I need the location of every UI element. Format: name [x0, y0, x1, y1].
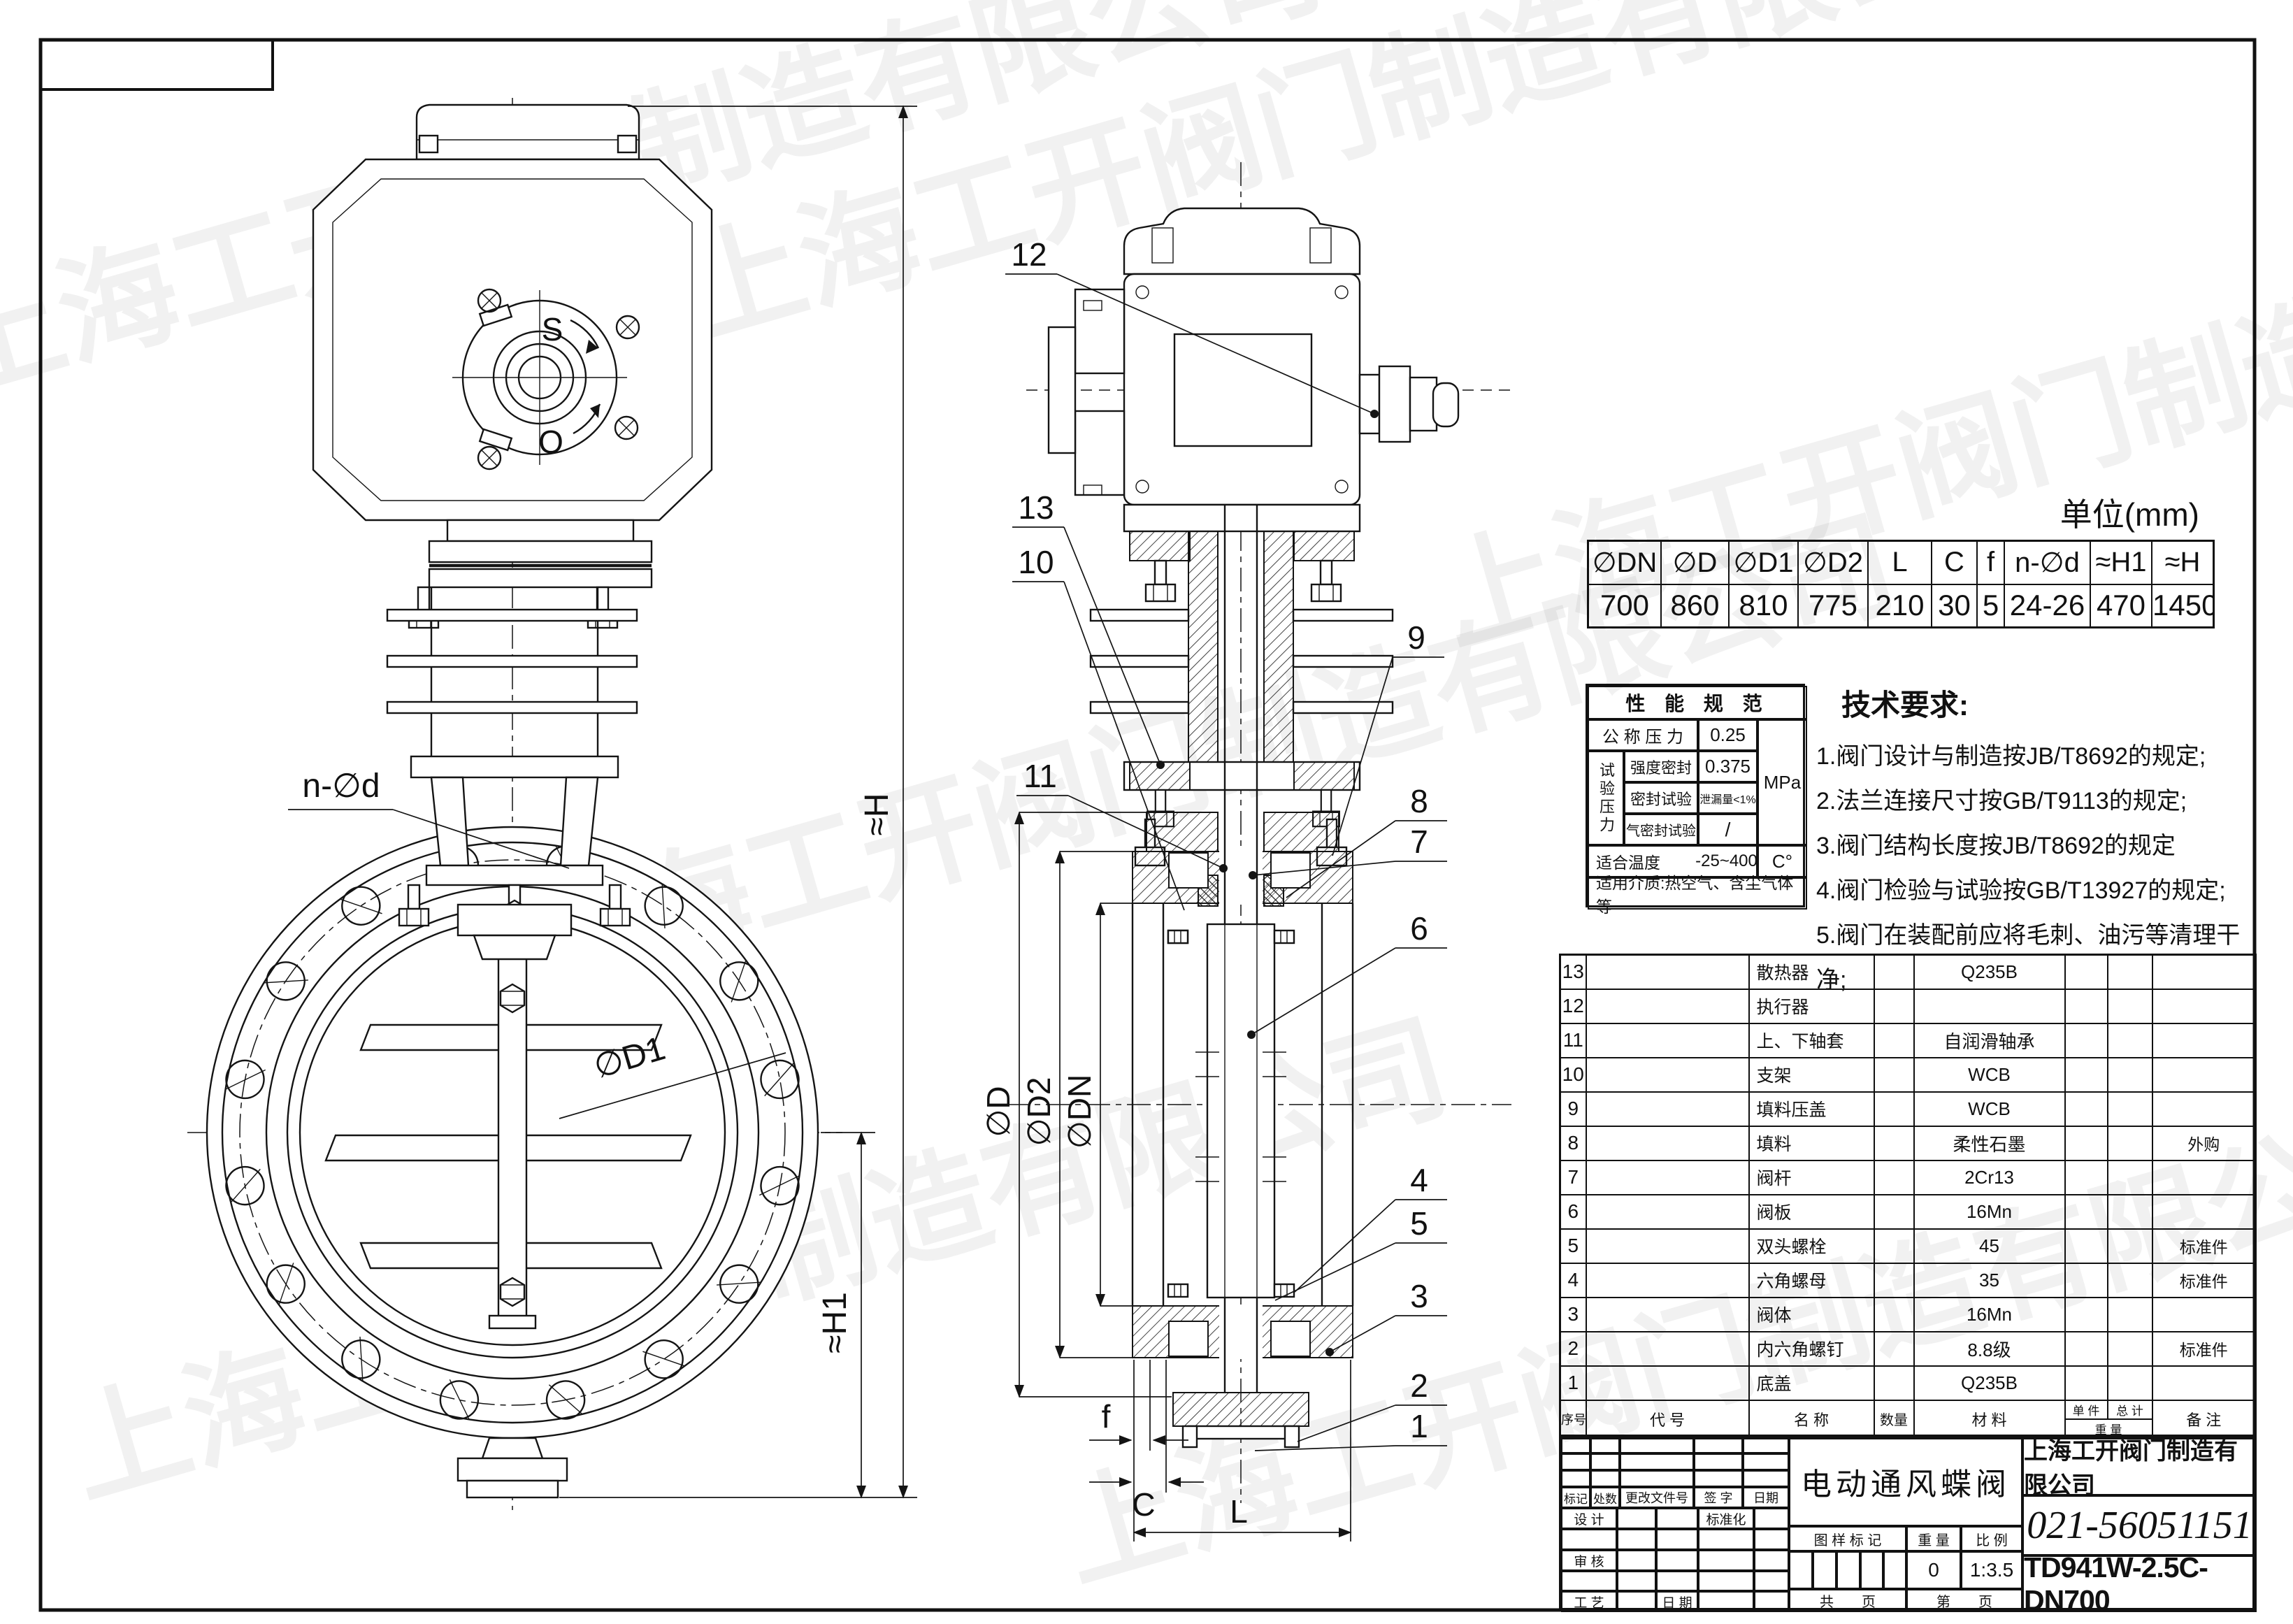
test-pressure-label: 试验压力 — [1588, 751, 1624, 845]
bom-cell-totalwt — [2108, 1263, 2152, 1298]
cable-gland — [1360, 366, 1458, 442]
dim-col-header: f — [1977, 541, 2004, 584]
bom-cell-code — [1586, 1229, 1749, 1263]
bom-cell-seq: 2 — [1560, 1332, 1586, 1366]
dim-D: ∅D — [980, 1086, 1016, 1137]
bom-cell-note: 外购 — [2152, 1126, 2256, 1160]
tb-scale-label: 比 例 — [1961, 1526, 2022, 1551]
bom-cell-qty — [1874, 1263, 1914, 1298]
nominal-pressure-label: 公 称 压 力 — [1588, 719, 1698, 751]
callout-2: 2 — [1410, 1367, 1428, 1404]
tb-sign: 签 字 — [1694, 1487, 1743, 1508]
bom-cell-unitwt — [2065, 1263, 2108, 1298]
bom-cell-totalwt — [2108, 1366, 2152, 1400]
bom-cell-material: 16Mn — [1914, 1195, 2065, 1229]
dim-value: 700 — [1588, 584, 1662, 628]
bom-cell-note — [2152, 1366, 2256, 1400]
bom-cell-unitwt — [2065, 1298, 2108, 1332]
bom-row: 10支架WCB — [1560, 1058, 2256, 1092]
bom-cell-material: Q235B — [1914, 955, 2065, 989]
dim-C: C — [1132, 1486, 1155, 1523]
bom-cell-note — [2152, 1092, 2256, 1126]
bom-cell-code — [1586, 1298, 1749, 1332]
bom-cell-code — [1586, 1160, 1749, 1195]
dim-f: f — [1102, 1398, 1111, 1435]
dial-close-label: O — [538, 424, 563, 460]
bom-row: 12执行器 — [1560, 989, 2256, 1023]
dim-col-header: ∅DN — [1588, 541, 1662, 584]
performance-title: 性 能 规 范 — [1588, 686, 1807, 719]
bottom-foot-front — [458, 1438, 567, 1497]
performance-table: 性 能 规 范 公 称 压 力 0.25 试验压力 强度密封 0.375 密封试… — [1586, 684, 1805, 907]
bom-cell-unitwt — [2065, 989, 2108, 1023]
fin — [387, 610, 637, 621]
bom-cell-name: 底盖 — [1749, 1366, 1874, 1400]
dim-h: ≈H — [858, 793, 896, 835]
bom-cell-note — [2152, 1023, 2256, 1058]
bom-cell-totalwt — [2108, 1160, 2152, 1195]
bom-cell-totalwt — [2108, 1298, 2152, 1332]
dim-L: L — [1230, 1493, 1248, 1530]
bom-cell-qty — [1874, 1023, 1914, 1058]
bom-cell-name: 阀杆 — [1749, 1160, 1874, 1195]
bom-cell-note — [2152, 1298, 2256, 1332]
bom-header-qty: 数量 — [1874, 1400, 1914, 1439]
dim-value: 860 — [1661, 584, 1729, 628]
tb-count: 处数 — [1590, 1487, 1620, 1508]
bom-row: 13散热器Q235B — [1560, 955, 2256, 989]
bom-row: 2内六角螺钉8.8级标准件 — [1560, 1332, 2256, 1366]
bom-cell-unitwt — [2065, 1058, 2108, 1092]
bom-cell-name: 阀板 — [1749, 1195, 1874, 1229]
drawing-sheet: 上海工开阀门制造有限公司 上海工开阀门制造有限公司 上海工开阀门制造有限公司 上… — [0, 0, 2293, 1624]
bom-row: 9填料压盖WCB — [1560, 1092, 2256, 1126]
bom-cell-unitwt — [2065, 1092, 2108, 1126]
bom-cell-totalwt — [2108, 1126, 2152, 1160]
bom-cell-code — [1586, 1023, 1749, 1058]
tb-weight-value: 0 — [1906, 1551, 1961, 1589]
bom-header-total: 总 计 — [2108, 1400, 2152, 1419]
strength-seal-label: 强度密封 — [1624, 751, 1698, 782]
bom-cell-code — [1586, 955, 1749, 989]
fin — [387, 702, 637, 713]
bom-row: 7阀杆2Cr13 — [1560, 1160, 2256, 1195]
bom-cell-qty — [1874, 1126, 1914, 1160]
callout-11: 11 — [1023, 758, 1057, 794]
bom-header-name: 名 称 — [1749, 1400, 1874, 1439]
dial-open-label: S — [542, 311, 563, 347]
bom-cell-unitwt — [2065, 1126, 2108, 1160]
bom-cell-material: WCB — [1914, 1092, 2065, 1126]
bom-cell-code — [1586, 1366, 1749, 1400]
bom-cell-totalwt — [2108, 989, 2152, 1023]
bom-cell-name: 双头螺栓 — [1749, 1229, 1874, 1263]
bom-cell-material: 8.8级 — [1914, 1332, 2065, 1366]
tb-weight-label: 重 量 — [1906, 1526, 1961, 1551]
callout-7: 7 — [1410, 824, 1428, 860]
tb-pages-total: 共 页 — [1789, 1589, 1906, 1612]
bom-cell-totalwt — [2108, 1023, 2152, 1058]
bom-cell-code — [1586, 1263, 1749, 1298]
bom-cell-material: 16Mn — [1914, 1298, 2065, 1332]
bom-cell-material: WCB — [1914, 1058, 2065, 1092]
bom-cell-material: 2Cr13 — [1914, 1160, 2065, 1195]
bom-cell-name: 支架 — [1749, 1058, 1874, 1092]
bom-cell-material: Q235B — [1914, 1366, 2065, 1400]
bom-cell-seq: 3 — [1560, 1298, 1586, 1332]
dim-value: 810 — [1729, 584, 1798, 628]
title-block: 标记 处数 更改文件号 签 字 日期 设 计 标准化 审 核 工 艺 日 期 电… — [1559, 1435, 2255, 1610]
bom-cell-qty — [1874, 1058, 1914, 1092]
bom-cell-code — [1586, 1058, 1749, 1092]
dim-value: 5 — [1977, 584, 2004, 628]
bom-cell-name: 填料压盖 — [1749, 1092, 1874, 1126]
callout-9: 9 — [1407, 619, 1425, 656]
actuator-front: S O — [313, 105, 712, 520]
callout-4: 4 — [1410, 1162, 1428, 1198]
bom-cell-qty — [1874, 1332, 1914, 1366]
bom-cell-material: 45 — [1914, 1229, 2065, 1263]
bom-cell-seq: 8 — [1560, 1126, 1586, 1160]
tb-page-no: 第 页 — [1906, 1589, 2022, 1612]
dim-col-header: n-∅d — [2004, 541, 2090, 584]
seal-test-value: 泄漏量<1% — [1698, 782, 1758, 814]
tb-mark: 标记 — [1561, 1487, 1590, 1508]
model-number: TD941W-2.5C-DN700 — [2022, 1555, 2257, 1612]
callout-12: 12 — [1011, 236, 1047, 273]
tech-req-title: 技术要求: — [1816, 682, 2264, 724]
dim-col-header: ∅D — [1661, 541, 1729, 584]
bom-table: 13散热器Q235B12执行器11上、下轴套自润滑轴承10支架WCB9填料压盖W… — [1559, 954, 2257, 1439]
tech-req-item: 2.法兰连接尺寸按GB/T9113的规定; — [1816, 779, 2264, 824]
bom-cell-name: 内六角螺钉 — [1749, 1332, 1874, 1366]
dim-col-header: L — [1868, 541, 1932, 584]
tb-drawing-mark: 图 样 标 记 — [1789, 1526, 1906, 1551]
bom-cell-qty — [1874, 1298, 1914, 1332]
tb-design: 设 计 — [1561, 1508, 1617, 1529]
bom-cell-seq: 6 — [1560, 1195, 1586, 1229]
bom-cell-unitwt — [2065, 1195, 2108, 1229]
dim-col-header: ∅D1 — [1729, 541, 1798, 584]
bom-cell-name: 六角螺母 — [1749, 1263, 1874, 1298]
bom-cell-seq: 12 — [1560, 989, 1586, 1023]
bom-cell-name: 填料 — [1749, 1126, 1874, 1160]
bom-cell-seq: 4 — [1560, 1263, 1586, 1298]
disc-hub — [1207, 924, 1274, 1298]
dim-value: 775 — [1798, 584, 1868, 628]
bom-header-seq: 序号 — [1560, 1400, 1586, 1439]
bom-row: 5双头螺栓45标准件 — [1560, 1229, 2256, 1263]
callout-10: 10 — [1018, 544, 1054, 580]
medium-note: 适用介质:热空气、含尘气体等 — [1588, 877, 1807, 910]
bom-cell-note: 标准件 — [2152, 1263, 2256, 1298]
callout-8: 8 — [1410, 783, 1428, 819]
bom-row: 3阀体16Mn — [1560, 1298, 2256, 1332]
tb-standardize: 标准化 — [1698, 1508, 1754, 1529]
product-name: 电动通风蝶阀 — [1789, 1437, 2022, 1526]
callout-6: 6 — [1410, 910, 1428, 947]
tech-req-item: 3.阀门结构长度按JB/T8692的规定 — [1816, 824, 2264, 868]
bom-cell-note — [2152, 1195, 2256, 1229]
tech-req-item: 4.阀门检验与试验按GB/T13927的规定; — [1816, 868, 2264, 913]
bom-cell-totalwt — [2108, 1332, 2152, 1366]
dim-n-od: n-∅d — [302, 768, 380, 805]
corner-box — [41, 40, 273, 89]
bom-cell-totalwt — [2108, 1058, 2152, 1092]
tb-check: 审 核 — [1561, 1550, 1617, 1571]
fin — [387, 656, 637, 667]
bom-cell-name: 阀体 — [1749, 1298, 1874, 1332]
bom-cell-totalwt — [2108, 1092, 2152, 1126]
nominal-pressure-value: 0.25 — [1698, 719, 1758, 751]
bom-cell-unitwt — [2065, 1023, 2108, 1058]
tb-craft: 工 艺 — [1561, 1591, 1617, 1612]
bom-cell-code — [1586, 1195, 1749, 1229]
bom-cell-qty — [1874, 1092, 1914, 1126]
bom-cell-code — [1586, 1092, 1749, 1126]
dim-col-header: ≈H — [2152, 541, 2214, 584]
seal-test-label: 密封试验 — [1624, 782, 1698, 814]
bom-cell-name: 执行器 — [1749, 989, 1874, 1023]
air-seal-value: / — [1698, 814, 1758, 845]
actuator-side — [1049, 208, 1458, 505]
bom-cell-seq: 10 — [1560, 1058, 1586, 1092]
company-name: 上海工开阀门制造有限公司 — [2022, 1437, 2257, 1495]
bom-cell-unitwt — [2065, 1366, 2108, 1400]
bom-cell-totalwt — [2108, 1229, 2152, 1263]
bom-cell-name: 散热器 — [1749, 955, 1874, 989]
callout-1: 1 — [1410, 1408, 1428, 1444]
bom-cell-seq: 13 — [1560, 955, 1586, 989]
tb-scale-value: 1:3.5 — [1961, 1551, 2022, 1589]
callout-3: 3 — [1410, 1278, 1428, 1314]
dim-value: 1450 — [2152, 584, 2214, 628]
bom-cell-code — [1586, 989, 1749, 1023]
bom-cell-name: 上、下轴套 — [1749, 1023, 1874, 1058]
valve-body-section — [1133, 505, 1353, 1447]
tech-req-item: 1.阀门设计与制造按JB/T8692的规定; — [1816, 734, 2264, 779]
bottom-cover — [1173, 1393, 1309, 1426]
bom-cell-seq: 11 — [1560, 1023, 1586, 1058]
dimension-table: ∅DN ∅D ∅D1 ∅D2 L C f n-∅d ≈H1 ≈H 700 860… — [1587, 540, 2215, 628]
bom-cell-note — [2152, 955, 2256, 989]
dim-D2: ∅D2 — [1021, 1077, 1057, 1147]
company-phone: 021-56051151 — [2022, 1495, 2257, 1555]
air-seal-label: 气密封试验 — [1624, 814, 1698, 845]
bom-row: 8填料柔性石墨外购 — [1560, 1126, 2256, 1160]
bom-cell-note — [2152, 1058, 2256, 1092]
bom-cell-seq: 5 — [1560, 1229, 1586, 1263]
dim-col-header: C — [1932, 541, 1977, 584]
strength-seal-value: 0.375 — [1698, 751, 1758, 782]
dim-value: 30 — [1932, 584, 1977, 628]
bom-cell-note — [2152, 989, 2256, 1023]
bom-row: 1底盖Q235B — [1560, 1366, 2256, 1400]
dim-col-header: ∅D2 — [1798, 541, 1868, 584]
bom-cell-code — [1586, 1332, 1749, 1366]
bom-cell-qty — [1874, 989, 1914, 1023]
bom-header-code: 代 号 — [1586, 1400, 1749, 1439]
bom-cell-unitwt — [2065, 1229, 2108, 1263]
bom-cell-totalwt — [2108, 955, 2152, 989]
dim-col-header: ≈H1 — [2090, 541, 2152, 584]
bom-row: 4六角螺母35标准件 — [1560, 1263, 2256, 1298]
tb-date2: 日 期 — [1656, 1591, 1698, 1612]
bom-row: 6阀板16Mn — [1560, 1195, 2256, 1229]
bom-cell-code — [1586, 1126, 1749, 1160]
bom-cell-unitwt — [2065, 955, 2108, 989]
bom-cell-material — [1914, 989, 2065, 1023]
bom-cell-note: 标准件 — [2152, 1332, 2256, 1366]
bom-cell-qty — [1874, 1160, 1914, 1195]
bom-cell-seq: 9 — [1560, 1092, 1586, 1126]
section-view: ∅D ∅D2 ∅DN f C L — [980, 162, 1511, 1542]
bom-cell-material: 35 — [1914, 1263, 2065, 1298]
dim-value: 24-26 — [2004, 584, 2090, 628]
bom-cell-material: 柔性石墨 — [1914, 1126, 2065, 1160]
bom-cell-note — [2152, 1160, 2256, 1195]
callout-5: 5 — [1410, 1205, 1428, 1242]
callout-13: 13 — [1018, 489, 1054, 526]
bom-cell-qty — [1874, 1195, 1914, 1229]
bom-cell-qty — [1874, 1366, 1914, 1400]
bom-cell-qty — [1874, 1229, 1914, 1263]
tb-change-doc: 更改文件号 — [1620, 1487, 1694, 1508]
bom-header-unit: 单 件 — [2065, 1400, 2108, 1419]
dim-h1: ≈H1 — [817, 1292, 854, 1353]
bom-cell-seq: 7 — [1560, 1160, 1586, 1195]
bom-cell-qty — [1874, 955, 1914, 989]
bom-cell-unitwt — [2065, 1332, 2108, 1366]
dim-value: 470 — [2090, 584, 2152, 628]
bom-cell-material: 自润滑轴承 — [1914, 1023, 2065, 1058]
dim-DN: ∅DN — [1061, 1075, 1098, 1149]
bom-cell-unitwt — [2065, 1160, 2108, 1195]
dim-value: 210 — [1868, 584, 1932, 628]
bom-cell-note: 标准件 — [2152, 1229, 2256, 1263]
bom-cell-seq: 1 — [1560, 1366, 1586, 1400]
unit-label: 单位(mm) — [2013, 489, 2199, 531]
bom-cell-totalwt — [2108, 1195, 2152, 1229]
pressure-unit: MPa — [1758, 719, 1807, 845]
bom-row: 11上、下轴套自润滑轴承 — [1560, 1023, 2256, 1058]
tb-date: 日期 — [1743, 1487, 1789, 1508]
